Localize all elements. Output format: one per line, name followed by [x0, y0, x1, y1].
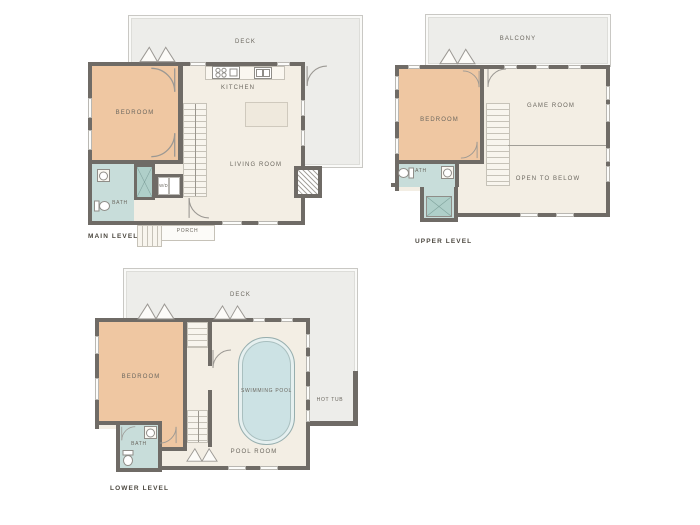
window-icon	[95, 378, 99, 400]
double-door-icon	[139, 46, 176, 63]
upper-balcony-label: BALCONY	[425, 36, 611, 42]
porch-steps	[137, 225, 162, 247]
double-door-icon	[186, 447, 218, 463]
main-laundry-label: W/D	[157, 183, 170, 188]
lower-bath-top-wall	[95, 421, 116, 425]
double-door-icon	[137, 303, 175, 320]
door-arc-icon	[150, 132, 176, 158]
window-icon	[277, 62, 290, 66]
toilet-icon	[122, 450, 134, 466]
window-icon	[301, 100, 305, 116]
pool-room-left-wall-lower	[208, 390, 212, 447]
lower-bedroom-bottom-wall	[158, 447, 187, 451]
hot-tub-bottom-wall	[308, 421, 358, 426]
double-door-icon	[439, 48, 476, 65]
door-arc-icon	[487, 68, 507, 88]
window-icon	[306, 410, 310, 422]
window-icon	[395, 76, 399, 90]
shower-x-icon	[137, 167, 152, 197]
door-arc-icon	[460, 141, 478, 159]
dryer-icon	[169, 177, 180, 195]
upper-footprint-notch	[391, 191, 420, 221]
main-shower	[134, 164, 155, 200]
toilet-icon	[94, 200, 110, 212]
window-icon	[536, 65, 549, 69]
lower-footprint-notch	[91, 429, 117, 474]
upper-bedroom-right-wall	[480, 65, 484, 164]
upper-bedroom-label: BEDROOM	[399, 117, 480, 123]
main-staircase	[183, 103, 207, 197]
open-to-below-divider	[508, 145, 606, 146]
upper-bath-right-wall	[455, 164, 459, 187]
fireplace-icon	[294, 166, 322, 198]
kitchen-label: KITCHEN	[203, 85, 273, 91]
floor-plan-sheet: DECK BEDROOM BATH W/D	[0, 0, 700, 525]
lower-bedroom	[99, 322, 183, 421]
upper-level-title: UPPER LEVEL	[415, 238, 472, 245]
game-room-label: GAME ROOM	[509, 103, 593, 109]
main-deck-label: DECK	[128, 39, 363, 45]
stove-icon	[212, 66, 240, 79]
living-room-label: LIVING ROOM	[206, 162, 306, 168]
lower-staircase-lower-run	[187, 410, 208, 443]
window-icon	[301, 130, 305, 146]
door-arc-icon	[212, 349, 232, 369]
upper-staircase	[486, 103, 510, 186]
upper-shower	[426, 196, 452, 217]
bathroom-sink-icon	[144, 426, 157, 439]
lower-level-title: LOWER LEVEL	[110, 485, 169, 492]
lower-bath-label: BATH	[120, 441, 158, 447]
window-icon	[95, 336, 99, 354]
bathroom-sink-icon	[97, 169, 110, 182]
door-arc-icon	[159, 426, 177, 444]
kitchen-sink-icon	[254, 67, 272, 79]
double-door-icon	[212, 305, 248, 320]
window-icon	[306, 386, 310, 400]
door-arc-icon	[306, 65, 328, 87]
window-icon	[258, 221, 278, 225]
window-icon	[606, 148, 610, 162]
window-icon	[253, 318, 265, 322]
lower-deck-label: DECK	[123, 292, 358, 298]
window-icon	[306, 334, 310, 348]
window-icon	[88, 98, 92, 118]
window-icon	[228, 466, 246, 470]
main-porch-label: PORCH	[160, 228, 215, 234]
window-icon	[520, 213, 538, 217]
open-to-below-label: OPEN TO BELOW	[496, 176, 600, 182]
door-arc-icon	[462, 70, 480, 88]
window-icon	[260, 466, 278, 470]
window-icon	[606, 86, 610, 100]
kitchen-island	[245, 102, 288, 127]
window-icon	[408, 65, 420, 69]
toilet-icon	[398, 167, 414, 179]
pool-room-label: POOL ROOM	[212, 449, 296, 455]
door-arc-icon	[121, 426, 136, 441]
shower-x-icon	[427, 197, 451, 216]
swimming-pool-label: SWIMMING POOL	[236, 388, 297, 394]
bathroom-sink-icon	[441, 166, 454, 179]
window-icon	[222, 221, 242, 225]
window-icon	[606, 104, 610, 122]
window-icon	[281, 318, 293, 322]
lower-staircase-upper-run	[187, 322, 208, 348]
window-icon	[568, 65, 581, 69]
main-bedroom-label: BEDROOM	[92, 110, 178, 116]
main-level-title: MAIN LEVEL	[88, 233, 138, 240]
hot-tub-label: HOT TUB	[305, 397, 355, 403]
window-icon	[606, 166, 610, 182]
lower-bedroom-label: BEDROOM	[99, 374, 183, 380]
window-icon	[395, 98, 399, 122]
door-arc-icon	[150, 67, 176, 93]
window-icon	[306, 356, 310, 372]
window-icon	[190, 62, 206, 66]
window-icon	[88, 130, 92, 150]
window-icon	[556, 213, 574, 217]
window-icon	[395, 138, 399, 154]
door-arc-icon	[188, 197, 210, 219]
